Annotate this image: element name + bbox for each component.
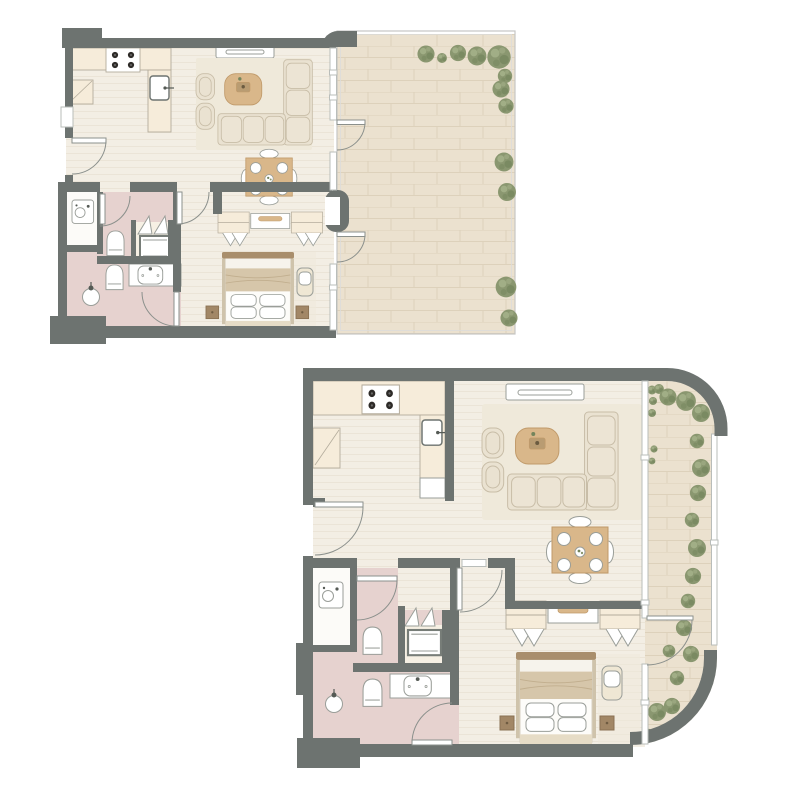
nightstand (600, 716, 614, 730)
glass-wall (642, 381, 648, 618)
dining-table-icon (241, 149, 297, 205)
nightstand (296, 306, 309, 319)
dining-table-icon (547, 517, 614, 584)
floor-plan-canvas (0, 0, 800, 800)
bedroom-door (457, 568, 462, 610)
terrace (337, 31, 518, 334)
ensuite-door (174, 292, 179, 326)
double-bed (222, 252, 294, 329)
glass-wall (330, 152, 337, 190)
balcony-door (647, 616, 693, 620)
nightstand (500, 716, 514, 730)
sink-icon (404, 676, 431, 696)
floor-plan-unit-1 (50, 28, 518, 344)
terrace-door (337, 232, 365, 237)
entrance-door (315, 502, 363, 507)
washing-machine-icon (319, 582, 343, 608)
balcony-railing (712, 545, 718, 645)
toilet-icon (106, 265, 123, 290)
balcony-railing (712, 434, 718, 540)
floor-plan-unit-2 (296, 368, 721, 768)
nightstand (206, 306, 219, 319)
terrace-floor (337, 34, 515, 334)
toilet-icon (107, 231, 124, 256)
stove-icon (106, 48, 140, 72)
stove-icon (362, 385, 399, 414)
bedroom-door (177, 192, 182, 224)
floor-plans-drawing (0, 0, 800, 800)
double-bed (516, 652, 596, 744)
bathroom-door (357, 576, 397, 581)
ensuite-door (412, 740, 452, 745)
interior-window (462, 560, 486, 567)
entrance-door (72, 138, 106, 143)
glass-wall (330, 48, 337, 120)
glass-wall (330, 264, 337, 330)
utility-shaft-icon (408, 630, 441, 655)
toilet-icon (363, 679, 382, 706)
washing-machine-icon (72, 200, 94, 223)
terrace-door (337, 120, 365, 125)
bathroom-door (100, 194, 105, 224)
toilet-icon (363, 627, 382, 654)
sink-icon (138, 266, 163, 284)
window (61, 107, 73, 127)
